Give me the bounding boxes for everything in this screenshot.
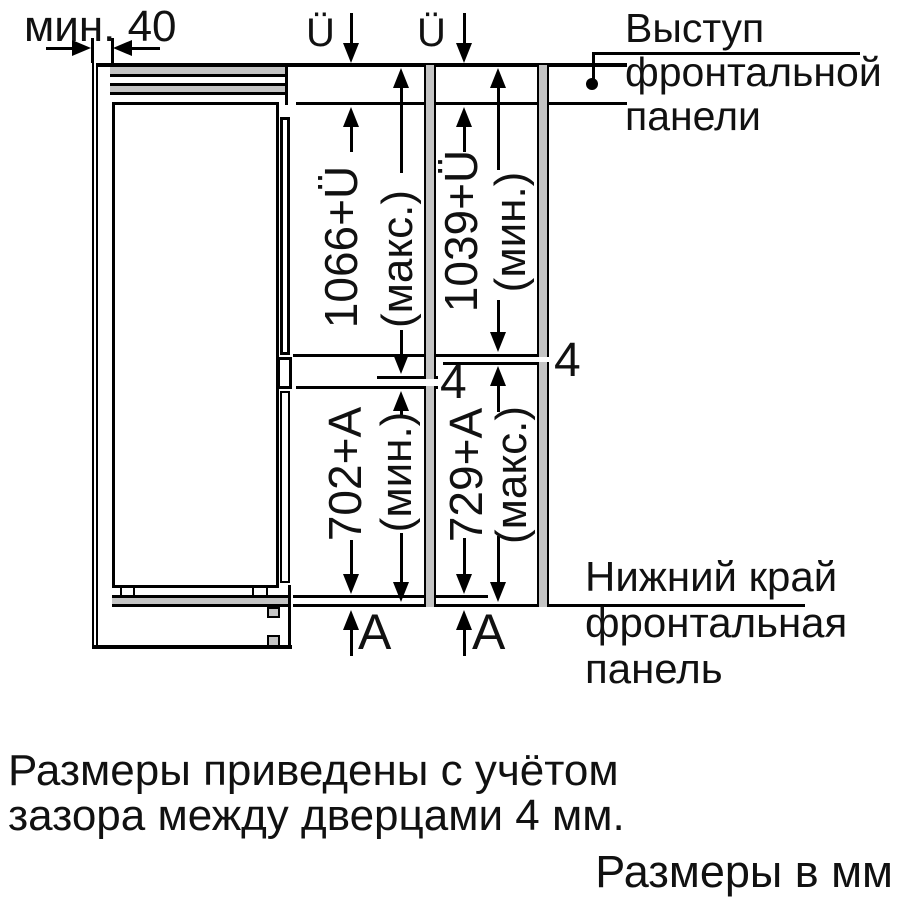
dim-a-left-upper-shaft bbox=[350, 540, 353, 576]
appliance-door-lower bbox=[280, 391, 290, 583]
a-symbol-left: A bbox=[358, 606, 391, 659]
dim-u-left-lower-shaft bbox=[350, 125, 353, 152]
dim-1066-lower-shaft bbox=[400, 330, 403, 356]
dim-a-right-down-arrowhead-icon bbox=[456, 574, 472, 594]
dim-a-left-down-arrowhead-icon bbox=[343, 574, 359, 594]
hinge-block-lower bbox=[267, 635, 280, 647]
dim-u-left-arrowhead-icon bbox=[343, 43, 359, 63]
installation-diagram: мин. 40 Ü Ü Выступ фронтальной панели 10… bbox=[0, 0, 897, 900]
gap4-left-label: 4 bbox=[440, 358, 467, 408]
front-panel-right-lower bbox=[537, 362, 549, 607]
min40-label: мин. 40 bbox=[24, 4, 177, 50]
cabinet-top-panel-bar-1 bbox=[110, 67, 288, 77]
dim-u-right-arrowhead-icon bbox=[456, 43, 472, 63]
appliance-door-upper bbox=[280, 117, 290, 355]
bottom-edge-min-line bbox=[293, 595, 488, 598]
dim-1039-label: 1039+Ü bbox=[434, 150, 488, 312]
cabinet-top-right-edge bbox=[285, 63, 288, 105]
hinge-block-upper bbox=[267, 607, 280, 618]
front-panel-left-lower bbox=[424, 386, 436, 607]
gap4-right-label: 4 bbox=[554, 336, 581, 386]
dim-a-right-lower-shaft bbox=[463, 628, 466, 656]
dim-702-lower-shaft bbox=[400, 533, 403, 584]
dim-1039-top-arrowhead-icon bbox=[490, 68, 506, 88]
dim-1066-top-arrowhead-icon bbox=[393, 68, 409, 88]
dim-1066-label: 1066+Ü bbox=[314, 166, 368, 328]
dim-729-label: 729+A bbox=[439, 408, 493, 542]
dim-1066-bottom-arrowhead-icon bbox=[393, 354, 409, 374]
dim-1066-upper-shaft bbox=[400, 86, 403, 173]
note-text: Размеры приведены с учётом зазора между … bbox=[8, 748, 625, 838]
top-callout-line3: панели bbox=[625, 94, 882, 138]
top-callout: Выступ фронтальной панели bbox=[625, 6, 882, 138]
dim-729-bottom-arrowhead-icon bbox=[490, 582, 506, 602]
dim-729-top-arrowhead-icon bbox=[490, 366, 506, 386]
u-symbol-left: Ü bbox=[306, 12, 335, 54]
top-callout-line2: фронтальной bbox=[625, 50, 882, 94]
gap-line-right-top bbox=[293, 354, 549, 357]
dim-u-right-lower-shaft bbox=[463, 125, 466, 152]
cabinet-bottom-line bbox=[92, 645, 292, 649]
front-panel-right-upper bbox=[537, 65, 549, 357]
dim-729-qualifier: (макс.) bbox=[487, 406, 537, 544]
cabinet-top-panel-bar-2 bbox=[110, 83, 288, 95]
appliance-body bbox=[112, 102, 279, 588]
dim-u-left-lower-arrowhead-icon bbox=[343, 107, 359, 127]
cabinet-bottom-right-edge bbox=[288, 585, 291, 649]
dim-702-qualifier: (мин.) bbox=[372, 412, 422, 533]
note-line2: зазора между дверцами 4 мм. bbox=[8, 793, 625, 838]
bottom-callout-line2: фронтальная bbox=[585, 600, 847, 646]
dim-a-left-up-arrowhead-icon bbox=[343, 610, 359, 630]
dim-u-left-shaft bbox=[350, 13, 353, 44]
dim-702-label: 702+A bbox=[318, 407, 372, 541]
top-callout-line1: Выступ bbox=[625, 6, 882, 50]
bottom-callout-line1: Нижний край bbox=[585, 554, 847, 600]
cabinet-left-wall bbox=[92, 63, 98, 649]
dim-a-right-upper-shaft bbox=[463, 538, 466, 576]
dim-702-top-arrowhead-icon bbox=[393, 391, 409, 411]
u-symbol-right: Ü bbox=[417, 12, 446, 54]
bottom-callout-line3: панель bbox=[585, 646, 847, 692]
appliance-door-divider bbox=[277, 357, 292, 389]
dim-1039-bottom-arrowhead-icon bbox=[490, 332, 506, 352]
appliance-top-ref-line bbox=[296, 102, 627, 105]
bottom-callout: Нижний край фронтальная панель bbox=[585, 554, 847, 692]
dim-u-right-shaft bbox=[463, 13, 466, 44]
units-label: Размеры в мм bbox=[595, 848, 893, 895]
gap-line-left-bottom bbox=[296, 386, 438, 389]
dim-a-right-up-arrowhead-icon bbox=[456, 610, 472, 630]
dim-1039-upper-shaft bbox=[497, 86, 500, 170]
note-line1: Размеры приведены с учётом bbox=[8, 748, 625, 793]
dim-702-bottom-arrowhead-icon bbox=[393, 582, 409, 602]
dim-1039-lower-shaft bbox=[497, 300, 500, 334]
dim-a-left-lower-shaft bbox=[350, 628, 353, 656]
top-callout-leader-dot bbox=[586, 78, 598, 90]
dim-1039-qualifier: (мин.) bbox=[486, 172, 536, 293]
dim-1066-qualifier: (макс.) bbox=[373, 190, 423, 328]
a-symbol-right: A bbox=[472, 606, 505, 659]
plinth-bar bbox=[112, 595, 288, 607]
dim-u-right-lower-arrowhead-icon bbox=[456, 107, 472, 127]
